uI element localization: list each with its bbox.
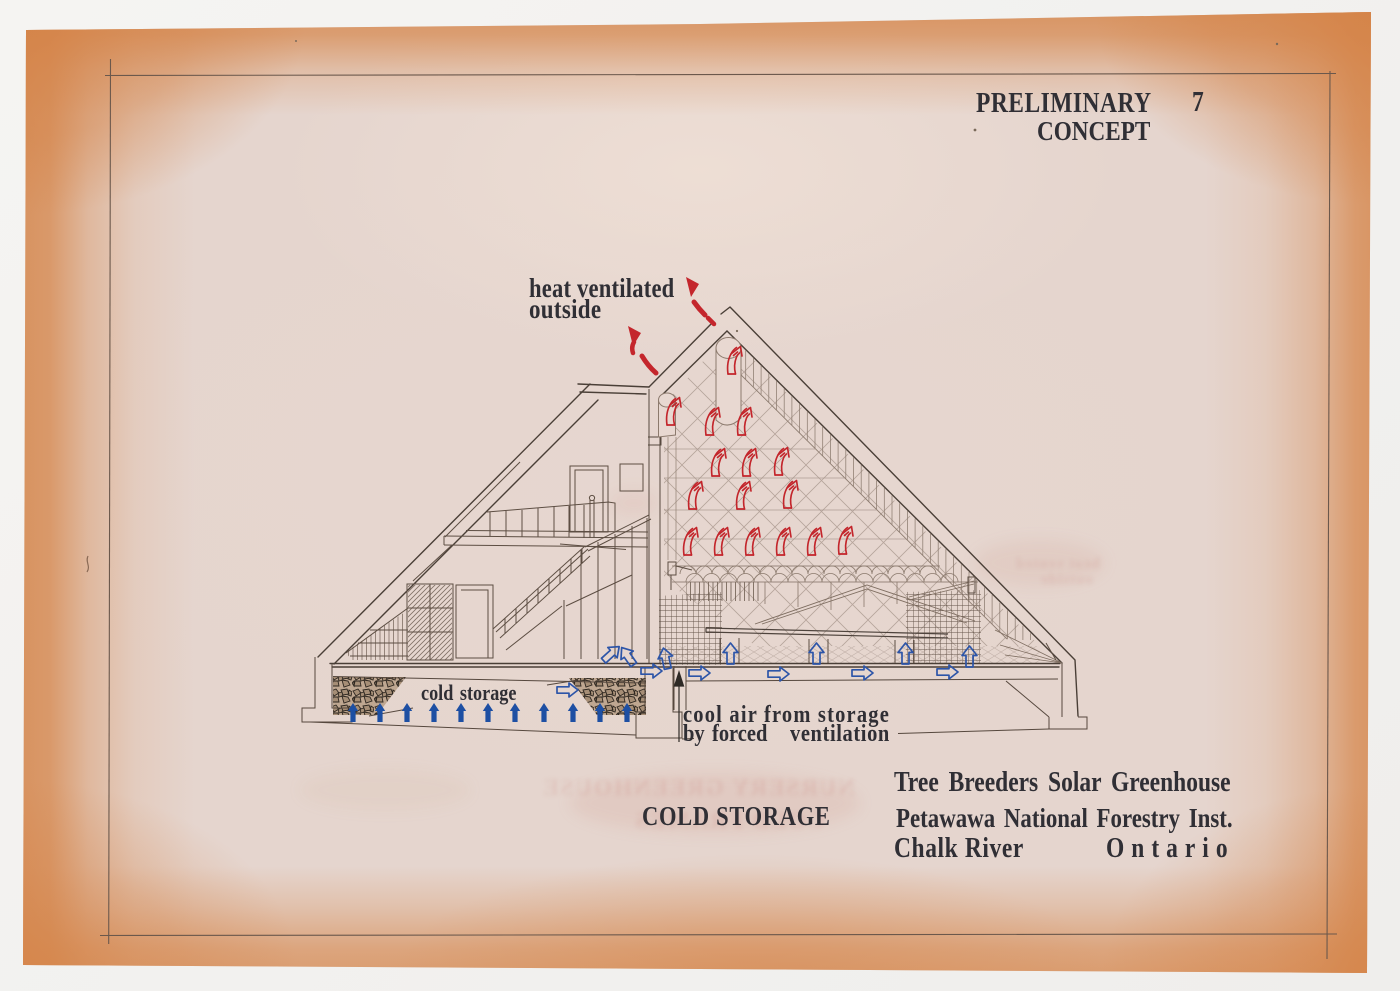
svg-text:cold storage: cold storage	[421, 681, 517, 705]
svg-text:PRELIMINARY: PRELIMINARY	[976, 87, 1152, 119]
svg-text:COLD STORAGE: COLD STORAGE	[642, 802, 831, 831]
svg-text:Ontario: Ontario	[1106, 832, 1235, 864]
svg-text:heat vented: heat vented	[1015, 556, 1100, 572]
svg-text:outside: outside	[1040, 572, 1093, 588]
svg-text:outside: outside	[529, 294, 601, 324]
svg-text:Petawawa National Forestry Ins: Petawawa National Forestry Inst.	[896, 803, 1233, 833]
svg-text:7: 7	[1192, 86, 1204, 118]
svg-text:CONCEPT: CONCEPT	[1037, 115, 1150, 147]
svg-text:Tree Breeders Solar Greenhouse: Tree Breeders Solar Greenhouse	[894, 766, 1231, 798]
svg-text:NURSERY GREENHOUSE: NURSERY GREENHOUSE	[541, 775, 855, 800]
svg-text:Chalk River: Chalk River	[894, 832, 1024, 864]
